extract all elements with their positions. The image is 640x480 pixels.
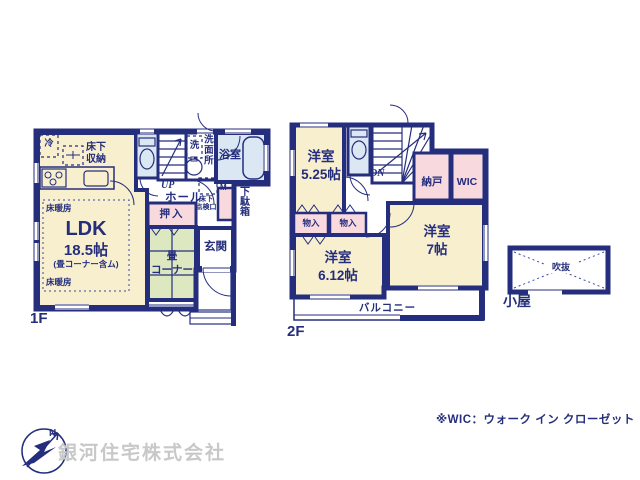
balcony-wall-thick: [400, 315, 484, 321]
label-attic: 小屋: [503, 293, 531, 311]
label-wic: WIC: [450, 176, 484, 189]
label-monoire-2: 物入: [330, 218, 366, 229]
label-ldk: LDK: [50, 217, 122, 242]
label-room-7: 洋室 7帖: [390, 223, 484, 259]
top-door-arc-2f: [390, 105, 408, 123]
label-void: 吹抜: [545, 262, 577, 273]
label-room-612: 洋室 6.12帖: [294, 249, 382, 285]
label-washer: 洗: [187, 140, 202, 152]
label-fridge: 冷: [40, 138, 58, 149]
label-balcony: バルコニー: [340, 302, 435, 315]
label-underfloor-storage: 床下 収納: [86, 142, 106, 165]
wic-footnote: ※WIC：ウォーク イン クローゼット: [436, 413, 635, 427]
label-floor-heating-1: 床暖房: [46, 203, 72, 214]
label-bathroom: 浴室: [219, 149, 241, 163]
label-meter: M: [220, 183, 227, 193]
label-dn: DN: [370, 168, 384, 181]
floor2-plan: [289, 105, 489, 321]
label-genkan: 玄関: [198, 240, 233, 254]
label-shoe-cabinet: 下駄箱: [236, 186, 249, 216]
label-floor-2f: 2F: [287, 323, 305, 342]
label-nando: 納戸: [414, 176, 450, 189]
logo-n-letter: N: [49, 428, 56, 441]
label-oshiire: 押入: [148, 208, 196, 221]
label-floor-heating-2: 床暖房: [46, 277, 72, 288]
label-room-525: 洋室 5.25帖: [294, 148, 348, 184]
label-ldk-note: (畳コーナー含ム): [40, 259, 132, 270]
label-underfloor-access: 床下 点検口: [192, 196, 220, 213]
balcony-wall-right: [479, 288, 485, 320]
label-ldk-size: 18.5帖: [46, 242, 126, 261]
label-floor-1f: 1F: [30, 310, 48, 329]
label-monoire-1: 物入: [294, 218, 328, 229]
company-name: 銀河住宅株式会社: [58, 442, 226, 466]
floorplan-page: 冷 床下 収納 洗 洗面所 浴室 UP ホール M 下駄箱 床下 点検口 押入 …: [0, 0, 640, 480]
logo-bird: [22, 440, 56, 466]
label-tatami-corner: 畳 コーナー: [149, 250, 195, 277]
label-washroom: 洗面所: [201, 134, 213, 166]
